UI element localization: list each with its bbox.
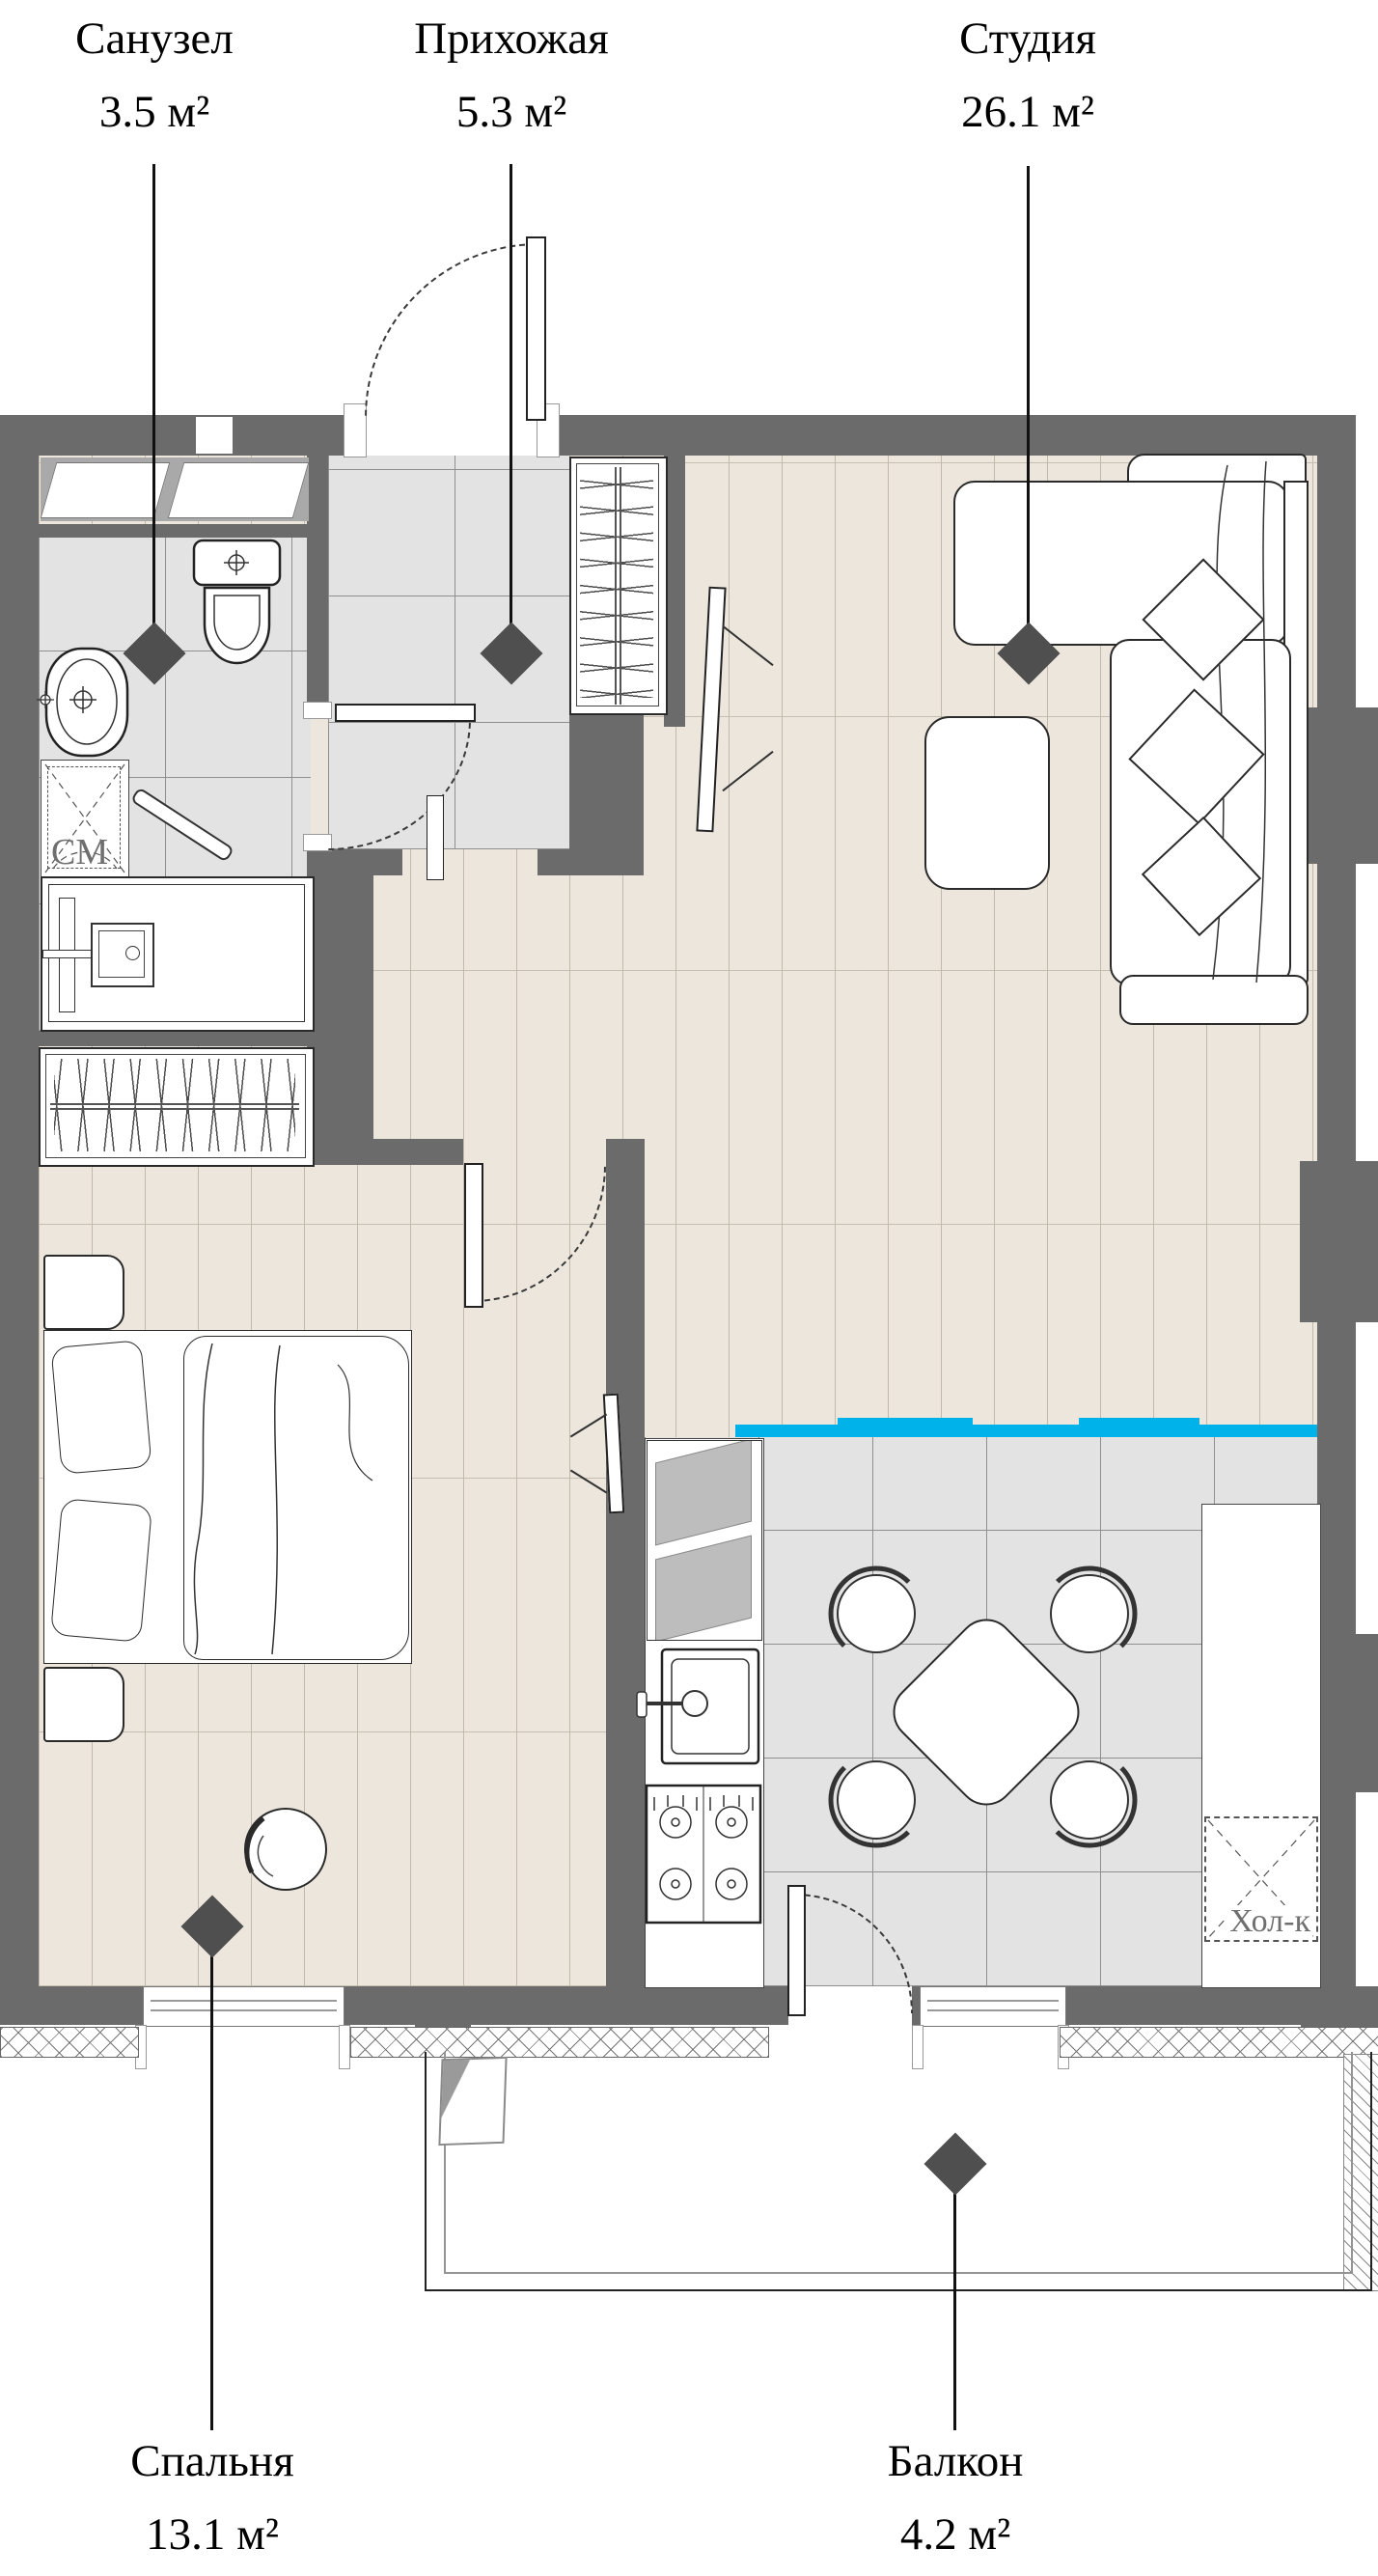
dining-chair: [823, 1747, 929, 1853]
balcony-door-leaf: [787, 1885, 806, 2016]
shower-arm: [42, 950, 95, 958]
bedroom-armchair: [234, 1797, 337, 1901]
pier-right-top: [1301, 707, 1378, 864]
insulation-hatch-left: [0, 2027, 139, 2058]
wall-bathroom-inner-top: [39, 524, 311, 538]
wardrobe-rod: [50, 1103, 299, 1105]
wall-bottom-kitchen-mullion: [912, 1986, 920, 2025]
bedroom-window: [143, 1986, 344, 2027]
closet-hangers: [580, 470, 653, 698]
entrance-door-leaf: [526, 236, 546, 421]
kitchen-tall-cabinet: [647, 1440, 762, 1641]
room-area: 3.5 м²: [0, 75, 309, 149]
dining-chair: [1036, 1747, 1143, 1853]
leader-line-bedroom: [210, 1926, 213, 2430]
wall-bedroom-hall-vertical: [328, 875, 373, 1139]
wall-bathroom-right-upper: [307, 415, 328, 702]
wall-bottom-bedroom-left: [0, 1986, 143, 2025]
leader-line-bathroom: [152, 164, 155, 647]
entrance-door-swing-arc: [365, 243, 538, 417]
room-name: Студия: [873, 2, 1182, 75]
entrance-jamb-left: [344, 403, 367, 457]
cabinet-door: [655, 1440, 752, 1545]
floor-transition-strip: [735, 1425, 1317, 1437]
room-name: Спальня: [58, 2424, 367, 2498]
room-label-studio: Студия 26.1 м²: [873, 2, 1182, 149]
shower: [41, 876, 315, 1032]
tv-studio: [675, 577, 782, 847]
bathroom-door-leaf: [335, 704, 476, 722]
wall-bottom-right: [1064, 1986, 1378, 2025]
tv-leg: [570, 1469, 607, 1493]
room-area: 5.3 м²: [357, 75, 666, 149]
shower-drain: [125, 946, 140, 960]
nightstand: [43, 1667, 124, 1742]
bathroom-sink: [44, 647, 129, 758]
stove: [645, 1784, 762, 1925]
wall-niche-stub: [196, 417, 233, 454]
shower-head-box: [91, 923, 154, 987]
closet-rod: [620, 467, 621, 705]
floor-transition-strip-nub: [1079, 1418, 1199, 1426]
tv-panel: [696, 587, 726, 833]
floor-plan: СМ: [0, 0, 1378, 2576]
nightstand: [43, 1255, 124, 1330]
window-glazing: [151, 2009, 337, 2011]
washing-machine-label: СМ: [51, 834, 108, 871]
room-area: 26.1 м²: [873, 75, 1182, 149]
toilet: [191, 538, 283, 673]
wardrobe-bedroom: [39, 1047, 315, 1167]
wall-bedroom-kitchen: [606, 1139, 645, 1986]
leader-line-balcony: [953, 2164, 956, 2430]
dining-chair: [823, 1561, 929, 1667]
kitchen-sink: [648, 1646, 764, 1767]
washing-machine: СМ: [41, 760, 129, 877]
dining-chair: [1036, 1561, 1143, 1667]
wardrobe-hangers: [54, 1059, 295, 1151]
balcony-railing-inner: [444, 2052, 1353, 2274]
room-label-balcony: Балкон 4.2 м²: [801, 2424, 1110, 2571]
fridge-label: Хол-к: [1227, 1905, 1312, 1938]
tv-bedroom: [571, 1386, 648, 1521]
kitchen-window: [920, 1986, 1066, 2027]
bed-duvet-folds: [183, 1336, 410, 1662]
room-label-bedroom: Спальня 13.1 м²: [58, 2424, 367, 2571]
bathroom-door-jamb: [303, 702, 332, 719]
pier-right-middle: [1300, 1161, 1378, 1322]
room-area: 13.1 м²: [58, 2498, 367, 2571]
tv-panel: [603, 1394, 624, 1514]
bathroom-top-niche: [41, 457, 309, 521]
hall-door-leaf: [427, 795, 444, 880]
coffee-table: [924, 716, 1050, 890]
room-label-bathroom: Санузел 3.5 м²: [0, 2, 309, 149]
room-label-hallway: Прихожая 5.3 м²: [357, 2, 666, 149]
window-glazing: [151, 2000, 337, 2002]
wall-hall-bottom-a: [311, 849, 402, 875]
closet-hallway: [569, 457, 668, 715]
wall-left: [0, 415, 39, 2025]
leader-line-hallway: [510, 164, 512, 647]
tv-leg: [722, 625, 773, 666]
window-sill-post: [339, 2025, 350, 2069]
bedroom-door-leaf: [464, 1163, 483, 1308]
room-name: Прихожая: [357, 2, 666, 75]
closet-rod: [615, 467, 617, 705]
tv-leg: [570, 1413, 607, 1437]
tv-leg: [722, 751, 773, 791]
niche-door: [168, 462, 309, 518]
wall-valve-symbol: [37, 691, 54, 708]
fridge: Хол-к: [1204, 1816, 1318, 1942]
room-name: Санузел: [0, 2, 309, 75]
wall-top-right: [538, 415, 1356, 456]
window-glazing: [927, 2009, 1059, 2011]
wall-bedroom-hall-foot: [328, 1139, 463, 1165]
bed-pillow: [50, 1340, 152, 1475]
wall-bathroom-bottom: [39, 1031, 311, 1046]
room-area: 4.2 м²: [801, 2498, 1110, 2571]
niche-door: [41, 462, 170, 518]
window-glazing: [927, 2000, 1059, 2002]
room-name: Балкон: [801, 2424, 1110, 2498]
wall-hall-bottom-b: [537, 849, 569, 875]
bed-pillow: [50, 1498, 152, 1643]
leader-line-studio: [1027, 166, 1030, 647]
wardrobe-rod: [50, 1108, 299, 1110]
balcony-open-sash: [438, 2057, 507, 2146]
column-hall-studio: [569, 711, 644, 875]
wall-bottom-middle: [343, 1986, 788, 2025]
cabinet-door: [655, 1536, 752, 1641]
floor-transition-strip-nub: [838, 1418, 973, 1426]
